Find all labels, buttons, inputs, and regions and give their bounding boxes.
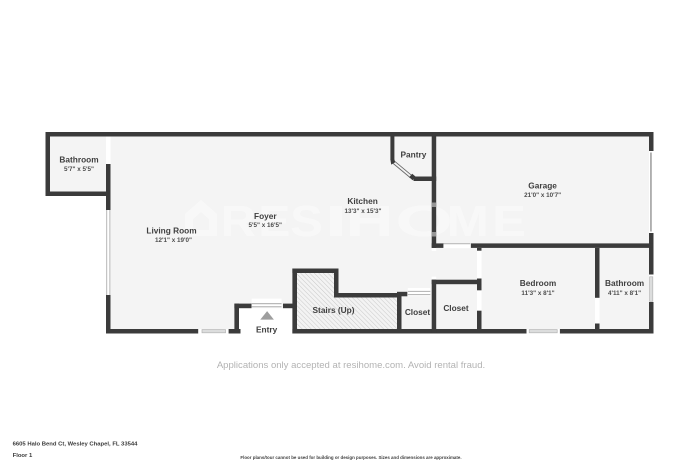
svg-text:Floor 1: Floor 1 [13, 453, 33, 459]
svg-text:Living Room: Living Room [146, 225, 196, 235]
svg-text:6605 Halo Bend Ct, Wesley Chap: 6605 Halo Bend Ct, Wesley Chapel, FL 335… [13, 442, 139, 448]
svg-text:Bedroom: Bedroom [520, 278, 556, 288]
svg-text:Garage: Garage [528, 181, 557, 191]
svg-text:Bathroom: Bathroom [59, 155, 98, 165]
svg-text:E: E [492, 197, 526, 246]
svg-text:S: S [290, 196, 323, 245]
svg-text:R: R [221, 196, 256, 245]
svg-text:I: I [324, 197, 347, 246]
svg-text:Pantry: Pantry [400, 150, 426, 160]
svg-text:Stairs (Up): Stairs (Up) [313, 305, 355, 315]
svg-text:5'7" x 5'5": 5'7" x 5'5" [64, 166, 94, 173]
svg-text:Floor plans/tour cannot be use: Floor plans/tour cannot be used for buil… [240, 455, 461, 460]
svg-text:M: M [447, 197, 489, 246]
svg-text:13'3" x 15'3": 13'3" x 15'3" [345, 208, 382, 215]
svg-text:Kitchen: Kitchen [347, 196, 377, 206]
svg-text:Applications only accepted at: Applications only accepted at resihome.c… [217, 360, 485, 371]
svg-text:12'1" x 19'0": 12'1" x 19'0" [155, 237, 192, 244]
svg-text:5'5" x 16'5": 5'5" x 16'5" [249, 222, 282, 229]
svg-text:4'11" x 8'1": 4'11" x 8'1" [608, 290, 641, 297]
svg-text:Bathroom: Bathroom [605, 278, 644, 288]
svg-text:Closet: Closet [405, 307, 431, 317]
svg-text:Closet: Closet [443, 303, 469, 313]
svg-text:E: E [258, 197, 290, 246]
svg-text:O: O [395, 196, 452, 245]
svg-text:21'0" x 10'7": 21'0" x 10'7" [524, 192, 561, 199]
svg-text:Entry: Entry [256, 324, 278, 334]
svg-text:Foyer: Foyer [254, 211, 277, 221]
svg-text:11'3" x 8'1": 11'3" x 8'1" [521, 290, 554, 297]
